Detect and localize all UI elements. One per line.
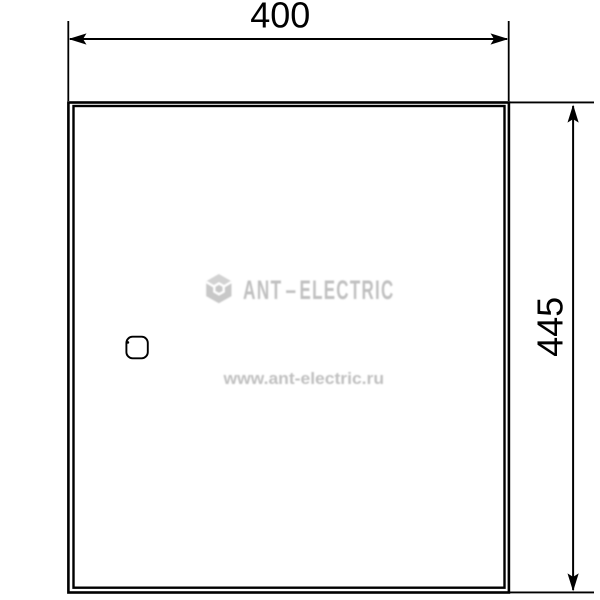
svg-text:400: 400 <box>250 0 310 35</box>
svg-text:ANT: ANT <box>243 275 283 305</box>
svg-text:–: – <box>286 275 297 305</box>
svg-text:445: 445 <box>530 297 571 357</box>
svg-text:ELECTRIC: ELECTRIC <box>300 275 395 305</box>
svg-text:www.ant-electric.ru: www.ant-electric.ru <box>222 369 384 388</box>
